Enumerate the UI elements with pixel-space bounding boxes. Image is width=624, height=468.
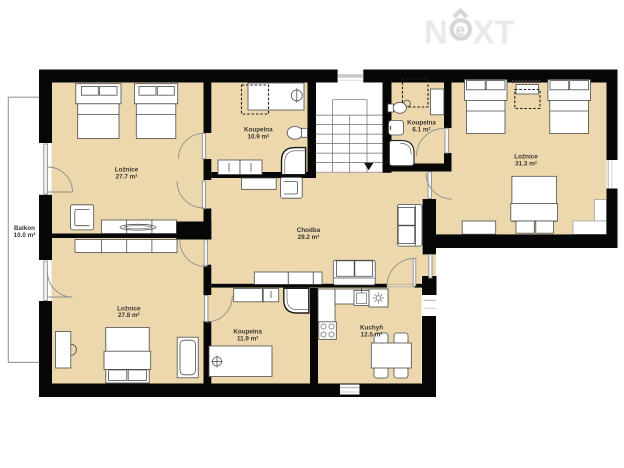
svg-text:29.2 m²: 29.2 m² [298, 234, 320, 241]
svg-text:12.5 m²: 12.5 m² [361, 331, 383, 338]
svg-text:Balkon: Balkon [14, 225, 35, 232]
svg-text:27.7 m²: 27.7 m² [116, 173, 138, 180]
svg-text:31.3 m²: 31.3 m² [515, 160, 537, 167]
svg-text:11.9 m²: 11.9 m² [237, 335, 258, 342]
svg-text:27.8 m²: 27.8 m² [118, 312, 140, 319]
svg-text:10.9 m²: 10.9 m² [247, 133, 269, 140]
svg-text:T: T [495, 14, 515, 51]
svg-text:10.0 m²: 10.0 m² [14, 232, 36, 239]
svg-text:N: N [424, 14, 448, 51]
svg-text:X: X [473, 14, 495, 51]
svg-text:6.1 m²: 6.1 m² [412, 126, 430, 133]
svg-text:e: e [456, 21, 465, 40]
